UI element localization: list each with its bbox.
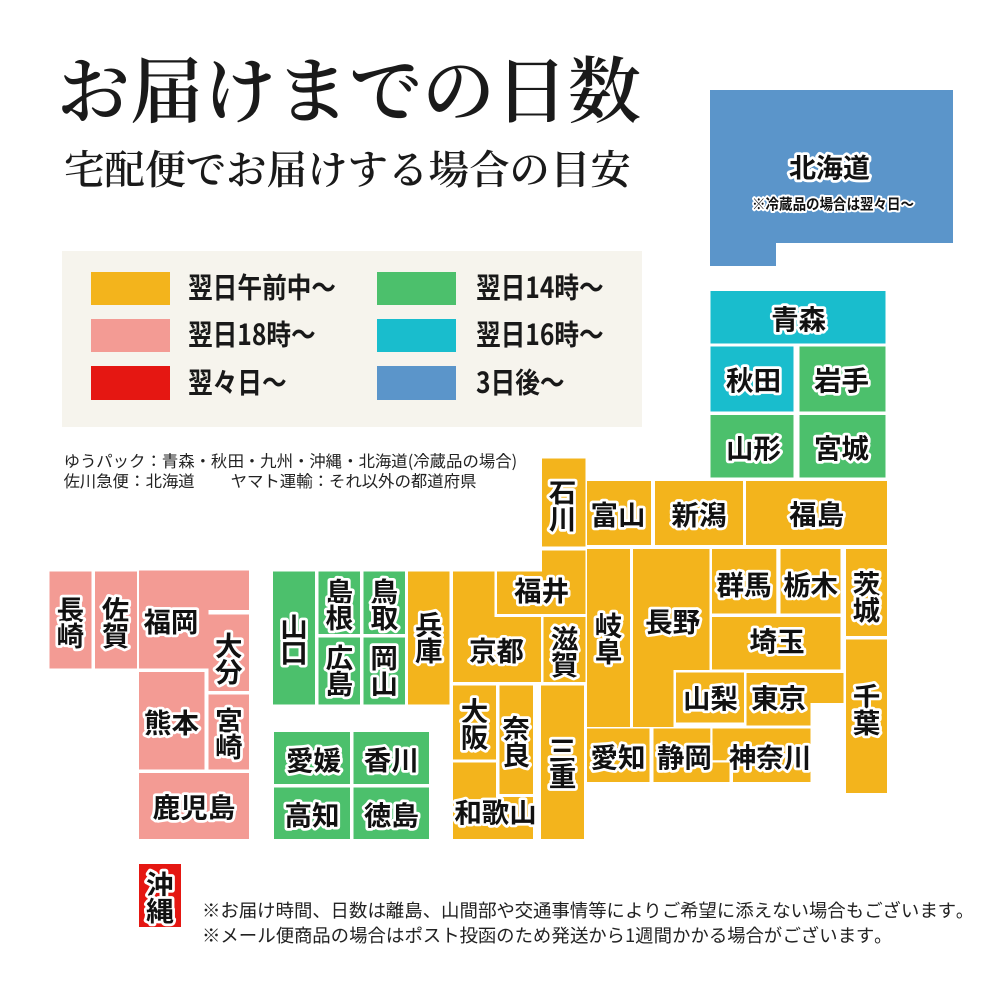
svg-text:宮城: 宮城 (814, 427, 869, 467)
svg-text:岐阜: 岐阜 (595, 604, 623, 670)
svg-text:京都: 京都 (469, 629, 524, 669)
svg-text:埼玉: 埼玉 (750, 620, 805, 660)
svg-text:鳥取: 鳥取 (371, 570, 399, 636)
svg-text:青森: 青森 (771, 298, 826, 338)
svg-text:山梨: 山梨 (683, 677, 738, 717)
svg-text:秋田: 秋田 (726, 359, 781, 399)
svg-text:大阪: 大阪 (461, 690, 489, 756)
svg-text:静岡: 静岡 (657, 736, 712, 776)
svg-text:新潟: 新潟 (672, 493, 727, 533)
svg-text:福井: 福井 (514, 569, 569, 609)
svg-text:富山: 富山 (591, 493, 646, 533)
svg-text:岩手: 岩手 (814, 359, 869, 399)
svg-text:鹿児島: 鹿児島 (153, 786, 236, 826)
svg-text:沖縄: 沖縄 (146, 863, 174, 929)
svg-text:栃木: 栃木 (783, 563, 838, 603)
svg-text:福岡: 福岡 (144, 600, 199, 640)
svg-text:宮崎: 宮崎 (215, 699, 243, 765)
svg-text:愛媛: 愛媛 (286, 739, 341, 779)
svg-text:岡山: 岡山 (371, 636, 399, 702)
svg-text:※冷蔵品の場合は翌々日〜: ※冷蔵品の場合は翌々日〜 (752, 192, 914, 214)
svg-text:山形: 山形 (726, 427, 781, 467)
svg-text:長崎: 長崎 (57, 588, 85, 654)
svg-text:福島: 福島 (789, 493, 844, 533)
svg-text:愛知: 愛知 (591, 736, 646, 776)
svg-text:和歌山: 和歌山 (454, 791, 537, 831)
svg-text:神奈川: 神奈川 (729, 736, 812, 776)
svg-text:兵庫: 兵庫 (415, 603, 443, 669)
svg-text:石川: 石川 (549, 471, 577, 537)
svg-text:佐賀: 佐賀 (101, 588, 130, 654)
svg-text:奈良: 奈良 (503, 707, 531, 773)
svg-text:群馬: 群馬 (717, 563, 772, 603)
svg-text:香川: 香川 (364, 738, 419, 778)
svg-text:山口: 山口 (280, 605, 308, 671)
svg-text:島根: 島根 (326, 570, 354, 636)
svg-text:長野: 長野 (645, 600, 700, 640)
svg-text:三重: 三重 (549, 729, 577, 795)
svg-text:千葉: 千葉 (853, 675, 881, 741)
svg-text:徳島: 徳島 (364, 794, 419, 834)
svg-text:大分: 大分 (215, 624, 243, 690)
svg-text:高知: 高知 (285, 794, 340, 834)
svg-text:東京: 東京 (751, 677, 806, 717)
svg-text:北海道: 北海道 (789, 147, 870, 186)
svg-text:滋賀: 滋賀 (551, 617, 579, 683)
svg-text:広島: 広島 (326, 636, 354, 702)
svg-text:熊本: 熊本 (144, 701, 199, 741)
svg-text:茨城: 茨城 (853, 563, 881, 629)
